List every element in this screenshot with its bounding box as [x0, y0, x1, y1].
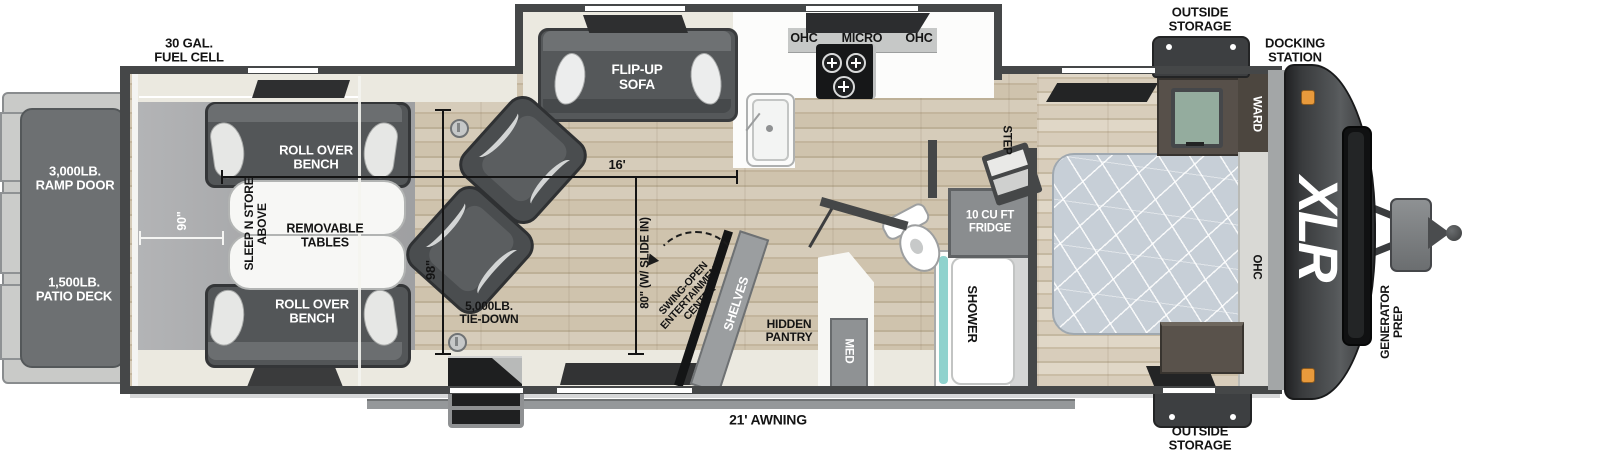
wardrobe-cabinet: [1157, 78, 1245, 156]
garage-opening-line: [132, 74, 138, 386]
marker-light: [1301, 368, 1315, 383]
window: [1062, 68, 1155, 73]
recliner-seat: [424, 201, 518, 296]
patio-deck-label: 1,500LB. PATIO DECK: [36, 276, 112, 305]
dim-98-tick: [435, 353, 451, 355]
med-label: MED: [842, 339, 855, 364]
dim-16-tick: [736, 170, 738, 184]
ohc-left-label: OHC: [790, 32, 817, 46]
hidden-pantry-label: HIDDEN PANTRY: [766, 318, 813, 344]
awning-label: 21' AWNING: [729, 412, 807, 427]
cooktop-burner: [833, 76, 855, 98]
floorplan-canvas: 3,000LB. RAMP DOOR 1,500LB. PATIO DECK 2…: [0, 0, 1600, 454]
roll-over-bench-bottom-label: ROLL OVER BENCH: [275, 298, 349, 327]
removable-tables-label: REMOVABLE TABLES: [286, 222, 363, 250]
dim-80-tick: [628, 353, 644, 355]
marker-light: [1301, 90, 1315, 105]
bed: [1052, 153, 1242, 335]
shower-label: SHOWER: [965, 285, 979, 342]
slide-wall-left: [515, 4, 523, 74]
fridge-label: 10 CU FT FRIDGE: [966, 209, 1014, 234]
sleep-n-store-label: SLEEP N STORE ABOVE: [243, 178, 269, 271]
shower: [934, 250, 1034, 392]
tie-down-label: 5,000LB. TIE-DOWN: [459, 300, 518, 326]
bath-wall-vertical: [928, 140, 937, 198]
window: [1163, 388, 1215, 393]
kitchen-sink: [746, 93, 795, 167]
recliner-seat: [477, 111, 571, 206]
wall-top-left: [120, 66, 523, 74]
tv-handle: [1186, 142, 1204, 146]
tie-down-anchor: [448, 333, 467, 352]
ramp-door-deck: [20, 108, 125, 368]
entry-steps-outside: [448, 390, 524, 428]
sofa-back: [543, 31, 731, 51]
hitch-jack-plate: [1390, 198, 1432, 272]
ward-label: WARD: [1250, 96, 1263, 132]
shower-pan: [951, 257, 1015, 385]
roll-over-bench-top-label: ROLL OVER BENCH: [279, 144, 353, 173]
bench-top-back: [208, 104, 402, 122]
dim-80-line: [635, 177, 637, 355]
wall-rear: [120, 66, 130, 394]
ohc-right-label: OHC: [905, 32, 932, 46]
tv: [1171, 88, 1223, 148]
generator-prep-label: GENERATOR PREP: [1379, 285, 1405, 359]
cooktop-burner: [822, 53, 842, 73]
micro-label: MICRO: [842, 32, 883, 46]
wall-bottom: [120, 386, 1282, 394]
entry-door-opening: [450, 388, 523, 393]
dim-16-line: [222, 176, 738, 178]
tie-down-anchor: [450, 119, 469, 138]
dim-90-tick: [139, 231, 141, 245]
outside-storage-top-label: OUTSIDE STORAGE: [1169, 6, 1232, 35]
window: [557, 388, 692, 393]
dim-80-label: 80" (W/ SLIDE IN): [640, 217, 653, 309]
outside-storage-bottom-label: OUTSIDE STORAGE: [1169, 425, 1232, 454]
body-shadow: [130, 394, 1280, 398]
nightstand: [1160, 322, 1244, 374]
storage-screw: [1230, 414, 1236, 420]
dim-16-tick: [221, 170, 223, 184]
entry-step-tread: [452, 410, 520, 424]
outside-storage-box-bottom: [1153, 390, 1252, 428]
shower-glass: [939, 256, 948, 384]
dim-98-label: 98": [424, 260, 438, 280]
slide-vent: [583, 15, 688, 33]
range-hood: [806, 13, 930, 33]
bedroom-rug-top: [1046, 83, 1158, 102]
dim-90-line: [139, 237, 224, 239]
dim-98-tick: [435, 109, 451, 111]
storage-screw: [1230, 44, 1236, 50]
wall-vent: [252, 80, 350, 98]
entry-step-well: [448, 356, 522, 389]
sink-faucet: [766, 125, 773, 132]
dim-98-line: [442, 110, 444, 355]
storage-screw: [1169, 414, 1175, 420]
bath-bedroom-wall: [1028, 148, 1037, 390]
generator-door-panel: [1348, 132, 1364, 338]
bedroom-ohc-label: OHC: [1250, 255, 1263, 280]
cooktop-burner: [846, 53, 866, 73]
hitch-ball: [1446, 225, 1462, 241]
bench-bottom-front: [208, 342, 402, 360]
step-label: STEP: [1000, 125, 1013, 154]
entry-step-corner: [492, 358, 522, 384]
window: [585, 6, 685, 11]
flip-up-sofa-label: FLIP-UP SOFA: [611, 63, 662, 93]
docking-station-label: DOCKING STATION: [1265, 37, 1325, 66]
dim-90-tick: [222, 231, 224, 245]
brand-logo: XLR: [1287, 177, 1349, 280]
ramp-door-label: 3,000LB. RAMP DOOR: [36, 165, 115, 194]
window: [806, 6, 918, 11]
dim-16-label: 16': [609, 158, 626, 172]
fuel-cell-label: 30 GAL. FUEL CELL: [154, 37, 223, 66]
entry-step-tread: [452, 392, 520, 406]
garage-floor-vent: [247, 368, 343, 387]
window: [248, 68, 318, 73]
dim-90-label: 90": [176, 211, 190, 230]
storage-screw: [1166, 44, 1172, 50]
